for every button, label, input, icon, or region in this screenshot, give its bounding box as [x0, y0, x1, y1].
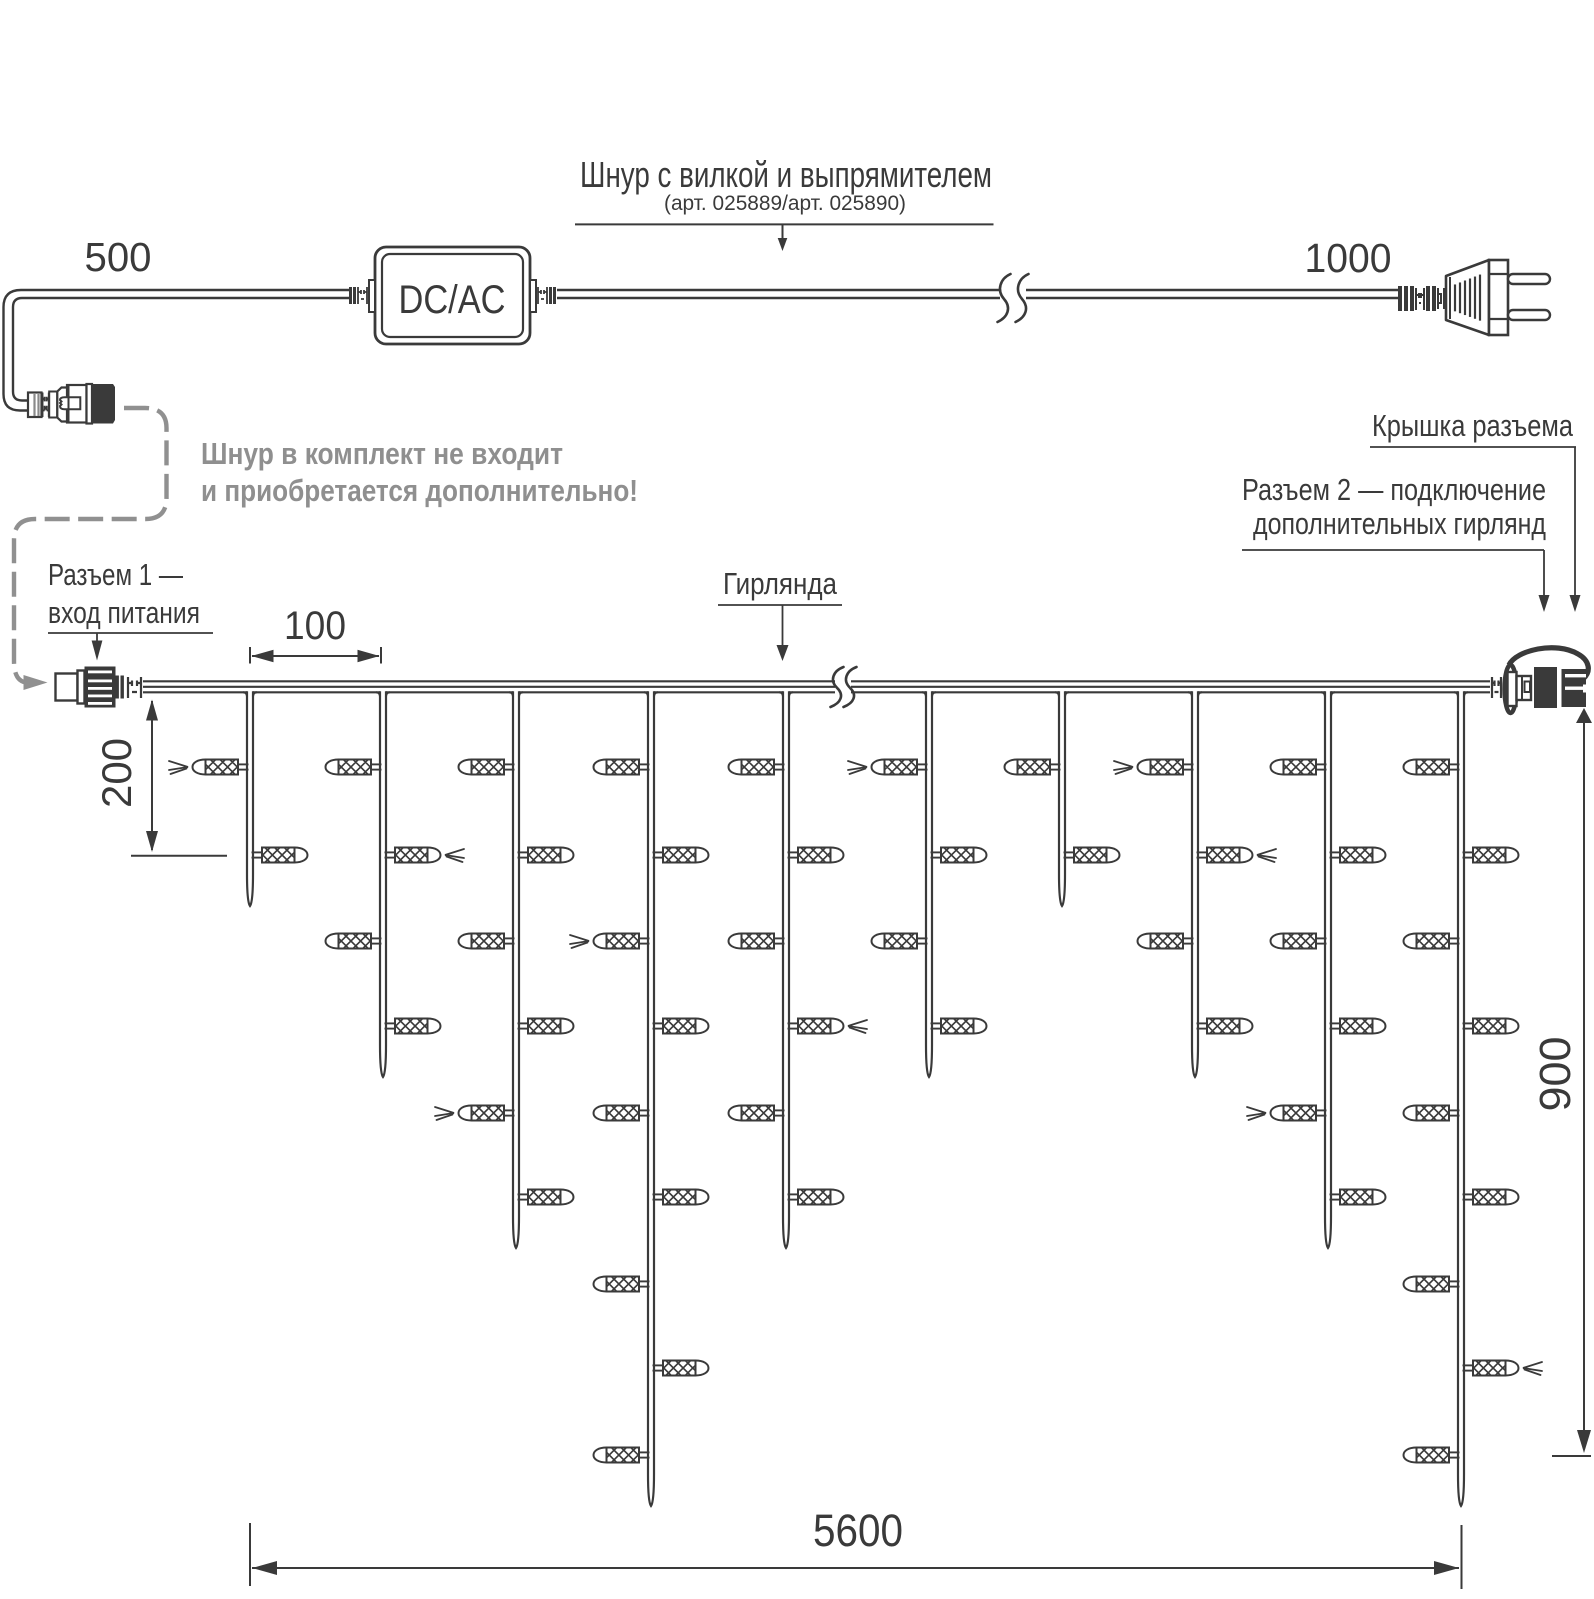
svg-text:DC/AC: DC/AC [399, 278, 506, 322]
svg-text:Крышка разъема: Крышка разъема [1372, 408, 1574, 443]
svg-text:Разъем 1 —: Разъем 1 — [48, 557, 183, 592]
svg-text:вход питания: вход питания [48, 595, 200, 630]
svg-text:Разъем 2 — подключение: Разъем 2 — подключение [1242, 472, 1546, 507]
svg-text:100: 100 [284, 604, 346, 648]
svg-text:500: 500 [85, 234, 152, 280]
svg-text:дополнительных гирлянд: дополнительных гирлянд [1253, 506, 1546, 541]
svg-text:и приобретается дополнительно!: и приобретается дополнительно! [201, 473, 638, 508]
svg-text:(арт. 025889/арт. 025890): (арт. 025889/арт. 025890) [664, 192, 906, 215]
svg-text:5600: 5600 [813, 1505, 903, 1556]
svg-text:1000: 1000 [1305, 235, 1392, 281]
svg-text:900: 900 [1531, 1037, 1580, 1112]
svg-text:Шнур с вилкой и выпрямителем: Шнур с вилкой и выпрямителем [580, 154, 992, 195]
svg-text:Гирлянда: Гирлянда [723, 566, 838, 601]
svg-text:200: 200 [93, 738, 140, 808]
svg-text:Шнур в комплект не входит: Шнур в комплект не входит [201, 436, 563, 471]
